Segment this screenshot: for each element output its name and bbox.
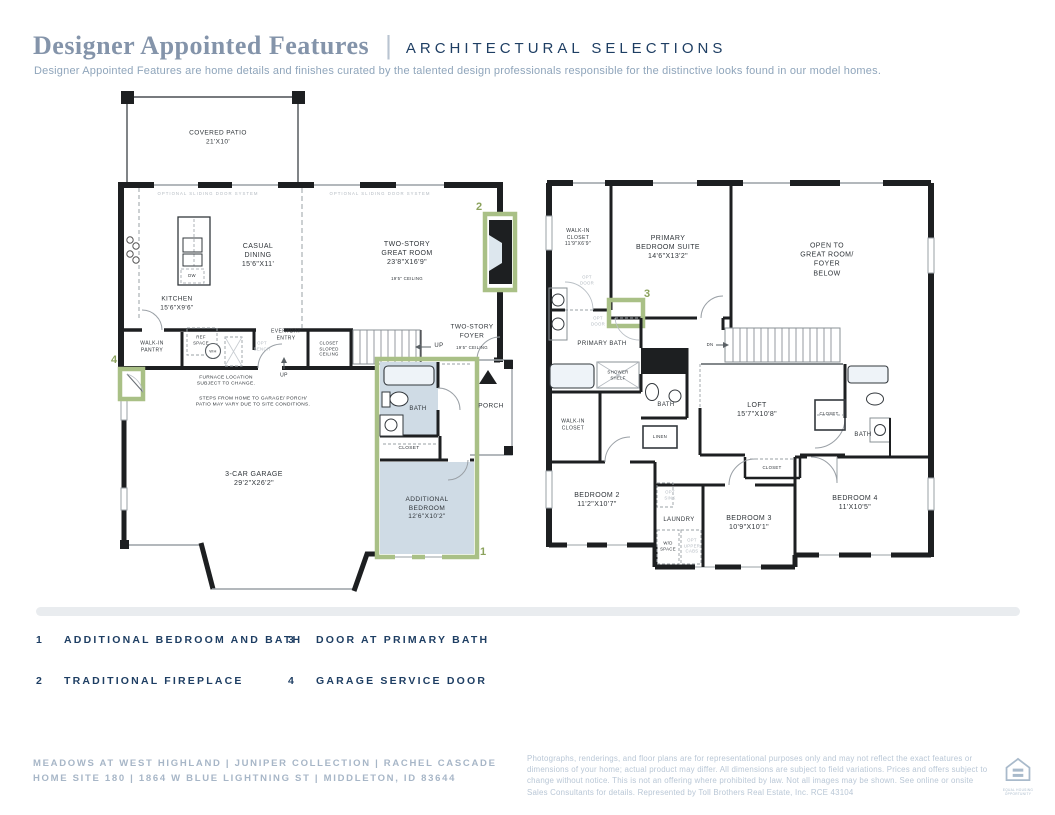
label-opt-door-bath: OPT DOOR (591, 315, 605, 326)
room-label-great-room: TWO-STORY GREAT ROOM 23'8"X16'9" (381, 240, 432, 268)
label-up-entry: UP (280, 373, 288, 380)
legend-number-2: 2 (36, 675, 64, 687)
label-closet-middle: CLOSET (763, 465, 782, 471)
legend-label-4: GARAGE SERVICE DOOR (316, 675, 487, 687)
note-furnace: FURNACE LOCATION SUBJECT TO CHANGE. (197, 376, 255, 389)
page-description: Designer Appointed Features are home det… (34, 65, 881, 77)
label-opt-sink: OPT SINK (664, 489, 675, 500)
note-sliding-door-right: OPTIONAL SLIDING DOOR SYSTEM (330, 191, 431, 197)
room-label-walk-in-pantry: WALK-IN PANTRY (140, 340, 163, 353)
room-label-bath: BATH (409, 406, 426, 414)
room-label-everyday-entry: EVERYDAY ENTRY (271, 328, 301, 341)
label-linen: LINEN (653, 434, 667, 440)
room-label-kitchen: KITCHEN 15'6"X9'6" (160, 295, 194, 312)
room-label-covered-patio: COVERED PATIO 21'X10' (189, 129, 247, 146)
note-sliding-door-left: OPTIONAL SLIDING DOOR SYSTEM (158, 191, 259, 197)
note-steps: STEPS FROM HOME TO GARAGE/ PORCH/ PATIO … (196, 397, 310, 410)
room-label-casual-dining: CASUAL DINING 15'6"X11' (242, 242, 274, 270)
legend-number-3: 3 (288, 634, 316, 646)
second-floor-plan: WALK-IN CLOSET 11'9"X6'9" OPT DOOR PRIMA… (545, 178, 935, 570)
legend-label-1: ADDITIONAL BEDROOM AND BATH (64, 634, 302, 646)
equal-housing-opportunity-icon (1003, 756, 1033, 783)
label-opt-bench: OPT BENCH (254, 340, 271, 351)
room-label-additional-bedroom: ADDITIONAL BEDROOM 12'6"X10'2" (405, 496, 448, 522)
room-label-two-story-foyer: TWO-STORY FOYER (450, 323, 493, 340)
label-ref-space: REF SPACE (193, 334, 209, 345)
room-label-walk-in-closet2: WALK-IN CLOSET (561, 418, 584, 431)
room-label-bedroom4: BEDROOM 4 11'X10'5" (832, 494, 878, 512)
label-closet-right: CLOSET (820, 411, 839, 417)
legend-label-3: DOOR AT PRIMARY BATH (316, 634, 489, 646)
room-label-walk-in-closet-primary: WALK-IN CLOSET 11'9"X6'9" (565, 228, 591, 248)
label-water-heater: WH (209, 348, 216, 353)
legend-label-2: TRADITIONAL FIREPLACE (64, 675, 244, 687)
label-closet: CLOSET (399, 446, 420, 452)
room-label-bedroom3: BEDROOM 3 10'9"X10'1" (726, 514, 772, 532)
note-foyer-ceiling: 19'5" CEILING (456, 345, 488, 351)
equal-housing-logo: EQUAL HOUSING OPPORTUNITY (1000, 756, 1036, 796)
label-dn-stairs: DN (707, 342, 714, 348)
section-divider (36, 607, 1020, 616)
label-dishwasher: DW (188, 273, 196, 279)
room-label-porch: PORCH (478, 403, 503, 412)
label-up-stairs: UP (434, 343, 443, 351)
equal-housing-text: EQUAL HOUSING OPPORTUNITY (1000, 788, 1036, 796)
label-opt-upper-cabs: OPT UPPER CABS (684, 537, 700, 554)
plan-marker-4: 4 (111, 354, 117, 366)
room-label-hall-bath: BATH (657, 402, 674, 410)
legend-number-1: 1 (36, 634, 64, 646)
title-separator: | (385, 30, 392, 61)
plan-marker-1: 1 (480, 546, 486, 558)
label-wd-space: W/D SPACE (660, 540, 676, 551)
room-label-open-to-below: OPEN TO GREAT ROOM/ FOYER BELOW (800, 242, 854, 279)
plan-marker-3: 3 (644, 288, 650, 300)
plan-marker-2: 2 (476, 201, 482, 213)
legend-item-2: 2 TRADITIONAL FIREPLACE (36, 675, 244, 687)
note-great-room-ceiling: 19'5" CEILING (391, 276, 423, 282)
label-closet-sloped-ceiling: CLOSET SLOPED CEILING (319, 340, 338, 357)
room-label-primary-bedroom: PRIMARY BEDROOM SUITE 14'6"X13'2" (636, 234, 700, 262)
label-opt-door-top: OPT DOOR (580, 274, 594, 285)
legend-item-4: 4 GARAGE SERVICE DOOR (288, 675, 487, 687)
room-label-loft: LOFT 15'7"X10'8" (737, 401, 777, 419)
label-shower-shelf: SHOWER SHELF (607, 369, 628, 380)
page-header: Designer Appointed Features | ARCHITECTU… (33, 30, 726, 61)
page-title: Designer Appointed Features (33, 31, 369, 61)
selections-subtitle: ARCHITECTURAL SELECTIONS (406, 40, 726, 57)
room-label-bedroom2: BEDROOM 2 11'2"X10'7" (574, 491, 620, 509)
legend-item-1: 1 ADDITIONAL BEDROOM AND BATH (36, 634, 302, 646)
legal-disclaimer: Photographs, renderings, and floor plans… (527, 753, 995, 798)
first-floor-plan: COVERED PATIO 21'X10' OPTIONAL SLIDING D… (108, 88, 520, 608)
community-info: MEADOWS AT WEST HIGHLAND | JUNIPER COLLE… (33, 757, 497, 786)
legend-item-3: 3 DOOR AT PRIMARY BATH (288, 634, 489, 646)
room-label-primary-bath: PRIMARY BATH (577, 341, 626, 349)
room-label-garage: 3-CAR GARAGE 29'2"X26'2" (225, 470, 283, 488)
room-label-laundry: LAUNDRY (663, 517, 694, 525)
room-label-bath-right: BATH (854, 432, 871, 440)
legend-number-4: 4 (288, 675, 316, 687)
